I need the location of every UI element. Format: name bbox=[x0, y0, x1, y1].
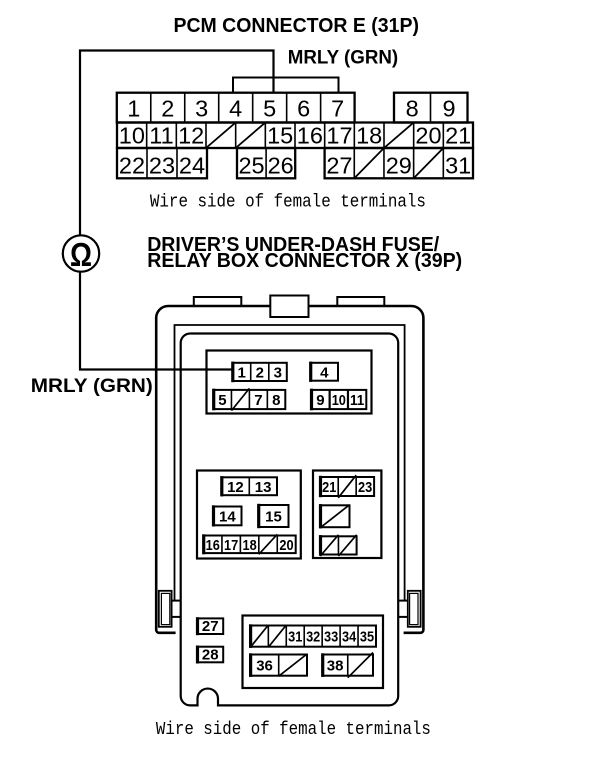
svg-text:9: 9 bbox=[316, 392, 324, 409]
svg-text:Ω: Ω bbox=[70, 236, 92, 273]
svg-text:26: 26 bbox=[268, 152, 294, 178]
svg-text:14: 14 bbox=[219, 509, 236, 526]
svg-text:4: 4 bbox=[229, 96, 242, 122]
svg-text:15: 15 bbox=[267, 123, 293, 149]
svg-text:36: 36 bbox=[256, 658, 273, 675]
svg-text:11: 11 bbox=[350, 392, 364, 409]
svg-text:38: 38 bbox=[327, 658, 344, 675]
svg-text:18: 18 bbox=[243, 537, 257, 554]
svg-text:20: 20 bbox=[279, 537, 293, 554]
svg-text:1: 1 bbox=[237, 365, 245, 382]
svg-text:23: 23 bbox=[149, 152, 175, 178]
svg-text:29: 29 bbox=[386, 152, 412, 178]
svg-text:25: 25 bbox=[238, 152, 264, 178]
svg-text:5: 5 bbox=[218, 392, 226, 409]
svg-text:12: 12 bbox=[178, 123, 204, 149]
svg-text:21: 21 bbox=[445, 123, 471, 149]
svg-text:6: 6 bbox=[297, 96, 310, 122]
svg-text:32: 32 bbox=[306, 629, 320, 646]
svg-text:3: 3 bbox=[195, 96, 208, 122]
svg-text:23: 23 bbox=[358, 479, 372, 496]
svg-text:22: 22 bbox=[119, 152, 145, 178]
svg-text:18: 18 bbox=[356, 123, 382, 149]
svg-text:16: 16 bbox=[297, 123, 323, 149]
svg-text:33: 33 bbox=[324, 629, 338, 646]
svg-text:7: 7 bbox=[331, 96, 344, 122]
svg-text:2: 2 bbox=[256, 365, 264, 382]
svg-text:27: 27 bbox=[326, 152, 352, 178]
svg-text:28: 28 bbox=[202, 647, 219, 664]
svg-text:20: 20 bbox=[415, 123, 441, 149]
svg-text:4: 4 bbox=[320, 364, 329, 381]
svg-text:10: 10 bbox=[119, 123, 145, 149]
svg-text:31: 31 bbox=[288, 629, 302, 646]
svg-text:34: 34 bbox=[342, 629, 357, 646]
svg-text:27: 27 bbox=[202, 618, 219, 635]
svg-text:21: 21 bbox=[322, 479, 336, 496]
svg-text:PCM CONNECTOR E (31P): PCM CONNECTOR E (31P) bbox=[173, 15, 419, 37]
svg-text:MRLY (GRN): MRLY (GRN) bbox=[288, 47, 399, 68]
svg-text:11: 11 bbox=[149, 123, 173, 149]
svg-text:10: 10 bbox=[332, 392, 346, 409]
svg-text:31: 31 bbox=[445, 152, 471, 178]
svg-text:17: 17 bbox=[326, 123, 352, 149]
svg-text:Wire side of female terminals: Wire side of female terminals bbox=[150, 193, 426, 213]
svg-text:7: 7 bbox=[254, 392, 262, 409]
svg-text:13: 13 bbox=[255, 479, 272, 496]
svg-text:15: 15 bbox=[265, 509, 282, 526]
svg-text:8: 8 bbox=[406, 96, 419, 122]
svg-text:RELAY BOX CONNECTOR X (39P): RELAY BOX CONNECTOR X (39P) bbox=[147, 250, 462, 272]
svg-text:3: 3 bbox=[274, 365, 282, 382]
svg-text:17: 17 bbox=[224, 537, 238, 554]
svg-text:MRLY (GRN): MRLY (GRN) bbox=[31, 376, 153, 397]
svg-text:1: 1 bbox=[127, 96, 140, 122]
svg-text:2: 2 bbox=[161, 96, 174, 122]
svg-text:Wire side of female terminals: Wire side of female terminals bbox=[156, 720, 431, 740]
svg-text:5: 5 bbox=[263, 96, 276, 122]
svg-text:9: 9 bbox=[442, 96, 455, 122]
svg-text:8: 8 bbox=[272, 392, 280, 409]
svg-text:24: 24 bbox=[179, 152, 205, 178]
svg-text:16: 16 bbox=[206, 537, 220, 554]
svg-text:35: 35 bbox=[360, 629, 374, 646]
svg-text:12: 12 bbox=[227, 479, 244, 496]
